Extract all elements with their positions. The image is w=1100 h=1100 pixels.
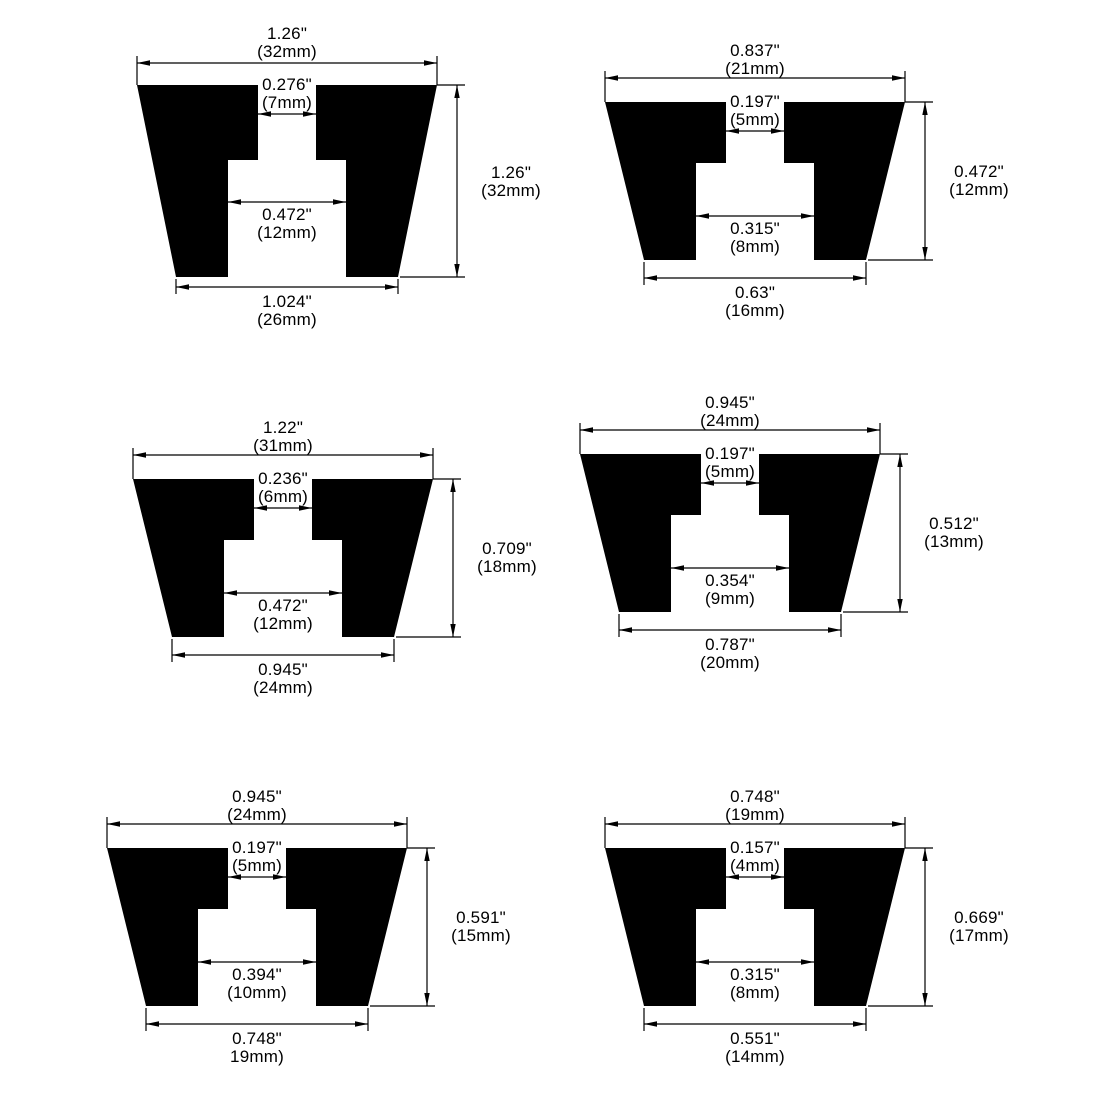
dimension-arrowhead xyxy=(644,275,657,280)
dim-mm: (5mm) xyxy=(580,463,880,481)
notch-width-label: 0.197" (5mm) xyxy=(580,445,880,481)
dimension-arrowhead xyxy=(303,111,316,116)
dimension-arrowhead xyxy=(801,959,814,964)
dim-mm: (16mm) xyxy=(605,302,905,320)
dim-inches: 0.748" xyxy=(107,1030,407,1048)
dimension-arrowhead xyxy=(619,627,632,632)
dimension-arrowhead xyxy=(644,1021,657,1026)
dim-inches: 1.26" xyxy=(137,25,437,43)
height-label: 0.709" (18mm) xyxy=(465,540,549,576)
dim-inches: 0.472" xyxy=(137,206,437,224)
dimension-arrowhead xyxy=(333,199,346,204)
dim-inches: 0.709" xyxy=(465,540,549,558)
bottom-width-label: 0.787" (20mm) xyxy=(580,636,880,672)
dimension-arrowhead xyxy=(146,1021,159,1026)
dimension-arrowhead xyxy=(228,874,241,879)
notch-width-label: 0.197" (5mm) xyxy=(107,839,407,875)
dimension-arrowhead xyxy=(450,624,455,637)
dim-inches: 0.512" xyxy=(912,515,996,533)
dimension-arrowhead xyxy=(329,590,342,595)
dim-mm: (32mm) xyxy=(137,43,437,61)
dim-mm: (5mm) xyxy=(107,857,407,875)
top-width-label: 0.748" (19mm) xyxy=(605,788,905,824)
dim-inches: 0.63" xyxy=(605,284,905,302)
diagram-bottom-right: 0.748" (19mm) 0.157" (4mm) 0.315" (8mm) … xyxy=(595,788,1025,1066)
height-label: 0.591" (15mm) xyxy=(439,909,523,945)
dimension-arrowhead xyxy=(424,60,437,65)
dim-mm: (5mm) xyxy=(605,111,905,129)
dimension-arrowhead xyxy=(172,652,185,657)
dim-inches: 0.354" xyxy=(580,572,880,590)
diagram-top-right: 0.837" (21mm) 0.197" (5mm) 0.315" (8mm) … xyxy=(595,42,1025,320)
dim-mm: (12mm) xyxy=(137,224,437,242)
dimension-arrowhead xyxy=(853,275,866,280)
diagram-top-left: 1.26" (32mm) 0.276" (7mm) 0.472" (12mm) … xyxy=(127,25,557,337)
dimension-arrowhead xyxy=(922,247,927,260)
notch-width-label: 0.197" (5mm) xyxy=(605,93,905,129)
dimension-arrowhead xyxy=(303,959,316,964)
dimension-arrowhead xyxy=(801,213,814,218)
dimension-arrowhead xyxy=(922,993,927,1006)
dimension-arrowhead xyxy=(922,102,927,115)
dimension-arrowhead xyxy=(922,848,927,861)
dim-mm: (31mm) xyxy=(133,437,433,455)
dim-inches: 0.837" xyxy=(605,42,905,60)
dimension-arrowhead xyxy=(424,848,429,861)
bottom-width-label: 0.63" (16mm) xyxy=(605,284,905,320)
dim-inches: 0.748" xyxy=(605,788,905,806)
dimension-arrowhead xyxy=(299,505,312,510)
dimension-arrowhead xyxy=(228,199,241,204)
dim-mm: (20mm) xyxy=(580,654,880,672)
dim-mm: (10mm) xyxy=(107,984,407,1002)
cavity-width-label: 0.315" (8mm) xyxy=(605,966,905,1002)
dim-mm: (24mm) xyxy=(107,806,407,824)
dim-mm: (19mm) xyxy=(605,806,905,824)
dim-inches: 0.787" xyxy=(580,636,880,654)
dim-inches: 0.276" xyxy=(137,76,437,94)
dim-mm: (21mm) xyxy=(605,60,905,78)
dimension-sheet: 1.26" (32mm) 0.276" (7mm) 0.472" (12mm) … xyxy=(0,0,1100,1100)
dim-inches: 1.22" xyxy=(133,419,433,437)
cavity-width-label: 0.354" (9mm) xyxy=(580,572,880,608)
dim-inches: 0.394" xyxy=(107,966,407,984)
dimension-arrowhead xyxy=(726,128,739,133)
dim-inches: 0.551" xyxy=(605,1030,905,1048)
dim-mm: (18mm) xyxy=(465,558,549,576)
dimension-arrowhead xyxy=(254,505,267,510)
dim-mm: 19mm) xyxy=(107,1048,407,1066)
dimension-arrowhead xyxy=(696,213,709,218)
dim-inches: 0.197" xyxy=(107,839,407,857)
dim-inches: 0.315" xyxy=(605,220,905,238)
dim-inches: 0.945" xyxy=(133,661,433,679)
dim-inches: 0.236" xyxy=(133,470,433,488)
dim-mm: (12mm) xyxy=(133,615,433,633)
dimension-arrowhead xyxy=(897,599,902,612)
dimension-arrowhead xyxy=(424,993,429,1006)
dim-mm: (26mm) xyxy=(137,311,437,329)
cavity-width-label: 0.315" (8mm) xyxy=(605,220,905,256)
dim-mm: (14mm) xyxy=(605,1048,905,1066)
dimension-arrowhead xyxy=(776,565,789,570)
dim-inches: 0.197" xyxy=(580,445,880,463)
cavity-width-label: 0.472" (12mm) xyxy=(137,206,437,242)
bottom-width-label: 1.024" (26mm) xyxy=(137,293,437,329)
dim-inches: 0.157" xyxy=(605,839,905,857)
dim-mm: (4mm) xyxy=(605,857,905,875)
dim-mm: (24mm) xyxy=(133,679,433,697)
bottom-width-label: 0.945" (24mm) xyxy=(133,661,433,697)
dim-inches: 0.472" xyxy=(937,163,1021,181)
dimension-arrowhead xyxy=(258,111,271,116)
dimension-arrowhead xyxy=(355,1021,368,1026)
bottom-width-label: 0.748" 19mm) xyxy=(107,1030,407,1066)
dim-inches: 0.945" xyxy=(107,788,407,806)
diagram-middle-right: 0.945" (24mm) 0.197" (5mm) 0.354" (9mm) … xyxy=(570,394,1000,672)
cavity-width-label: 0.472" (12mm) xyxy=(133,597,433,633)
dimension-arrowhead xyxy=(701,480,714,485)
dim-mm: (13mm) xyxy=(912,533,996,551)
dim-inches: 1.024" xyxy=(137,293,437,311)
dim-mm: (9mm) xyxy=(580,590,880,608)
dimension-arrowhead xyxy=(176,284,189,289)
dim-mm: (7mm) xyxy=(137,94,437,112)
top-width-label: 0.945" (24mm) xyxy=(580,394,880,430)
diagram-middle-left: 1.22" (31mm) 0.236" (6mm) 0.472" (12mm) … xyxy=(123,419,553,697)
dim-mm: (6mm) xyxy=(133,488,433,506)
dim-mm: (12mm) xyxy=(937,181,1021,199)
height-label: 1.26" (32mm) xyxy=(469,164,553,200)
dimension-arrowhead xyxy=(726,874,739,879)
top-width-label: 0.837" (21mm) xyxy=(605,42,905,78)
cavity-width-label: 0.394" (10mm) xyxy=(107,966,407,1002)
height-label: 0.512" (13mm) xyxy=(912,515,996,551)
dimension-arrowhead xyxy=(696,959,709,964)
dim-inches: 0.669" xyxy=(937,909,1021,927)
notch-width-label: 0.236" (6mm) xyxy=(133,470,433,506)
dimension-arrowhead xyxy=(853,1021,866,1026)
dimension-arrowhead xyxy=(771,128,784,133)
top-width-label: 1.26" (32mm) xyxy=(137,25,437,61)
top-width-label: 1.22" (31mm) xyxy=(133,419,433,455)
height-label: 0.669" (17mm) xyxy=(937,909,1021,945)
dimension-arrowhead xyxy=(137,60,150,65)
dim-inches: 0.945" xyxy=(580,394,880,412)
dimension-arrowhead xyxy=(224,590,237,595)
dimension-arrowhead xyxy=(746,480,759,485)
notch-width-label: 0.276" (7mm) xyxy=(137,76,437,112)
dimension-arrowhead xyxy=(450,479,455,492)
dimension-arrowhead xyxy=(381,652,394,657)
dimension-arrowhead xyxy=(828,627,841,632)
dim-inches: 1.26" xyxy=(469,164,553,182)
dimension-arrowhead xyxy=(771,874,784,879)
top-width-label: 0.945" (24mm) xyxy=(107,788,407,824)
dimension-arrowhead xyxy=(454,264,459,277)
dim-mm: (8mm) xyxy=(605,984,905,1002)
dimension-arrowhead xyxy=(198,959,211,964)
bottom-width-label: 0.551" (14mm) xyxy=(605,1030,905,1066)
foot-right-half xyxy=(316,85,437,277)
dimension-arrowhead xyxy=(454,85,459,98)
dim-mm: (15mm) xyxy=(439,927,523,945)
dim-inches: 0.197" xyxy=(605,93,905,111)
dimension-arrowhead xyxy=(897,454,902,467)
foot-left-half xyxy=(137,85,258,277)
dimension-arrowhead xyxy=(273,874,286,879)
diagram-bottom-left: 0.945" (24mm) 0.197" (5mm) 0.394" (10mm)… xyxy=(97,788,527,1066)
dimension-arrowhead xyxy=(671,565,684,570)
notch-width-label: 0.157" (4mm) xyxy=(605,839,905,875)
dim-inches: 0.315" xyxy=(605,966,905,984)
dim-mm: (32mm) xyxy=(469,182,553,200)
dim-mm: (17mm) xyxy=(937,927,1021,945)
height-label: 0.472" (12mm) xyxy=(937,163,1021,199)
dim-mm: (8mm) xyxy=(605,238,905,256)
dimension-arrowhead xyxy=(385,284,398,289)
dim-mm: (24mm) xyxy=(580,412,880,430)
dim-inches: 0.591" xyxy=(439,909,523,927)
dim-inches: 0.472" xyxy=(133,597,433,615)
